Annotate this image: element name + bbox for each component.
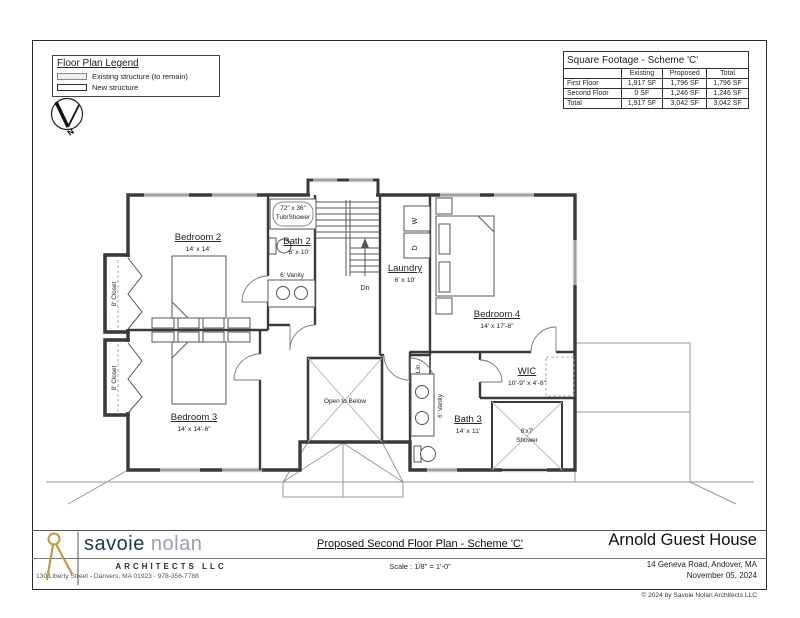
wic-label: WIC — [518, 366, 537, 377]
drawing-sheet: Floor Plan Legend Existing structure (to… — [0, 0, 800, 618]
bedroom4-label: Bedroom 4 — [474, 309, 520, 320]
project-name: Arnold Guest House — [580, 531, 757, 550]
col-proposed: Proposed — [663, 69, 707, 79]
svg-text:Shower: Shower — [516, 437, 539, 444]
shower-label: 6'x7' — [521, 428, 534, 435]
linen-label: Lin. — [415, 363, 422, 374]
table-row: Second Floor 0 SF 1,246 SF 1,246 SF — [564, 89, 749, 99]
washer-label: W — [412, 217, 419, 224]
col-existing: Existing — [621, 69, 663, 79]
firm-name: savoie nolan — [84, 533, 202, 556]
tub-size-label: 72" x 36" — [280, 205, 306, 212]
bedroom3-label: Bedroom 3 — [171, 412, 217, 423]
bed — [172, 256, 226, 318]
legend-item-new: New structure — [57, 83, 215, 92]
sheet-scale: Scale : 1/8" = 1'-0" — [280, 562, 560, 571]
project-date: November 05, 2024 — [580, 571, 757, 580]
copyright-note: © 2024 by Savoie Nolan Architects LLC — [580, 592, 757, 599]
legend-title: Floor Plan Legend — [57, 58, 215, 69]
project-address: 14 Geneva Road, Andover, MA — [580, 560, 757, 569]
toilet — [269, 238, 276, 254]
legend-new-label: New structure — [92, 83, 138, 92]
sheet-title: Proposed Second Floor Plan - Scheme 'C' — [280, 538, 560, 550]
bath3-label: Bath 3 — [454, 414, 481, 425]
svg-text:10'-9" x 4'-8": 10'-9" x 4'-8" — [508, 380, 547, 387]
laundry-label: Laundry — [388, 263, 423, 274]
bath3-vanity-label: 6' Vanity — [437, 393, 444, 418]
svg-text:14' x 14'-6": 14' x 14'-6" — [177, 426, 211, 433]
svg-text:6' x 10': 6' x 10' — [394, 277, 415, 284]
titleblock-mid-rule — [32, 558, 767, 559]
toilet — [414, 446, 421, 462]
dryer-label: D — [412, 245, 419, 250]
sqft-table-title: Square Footage - Scheme 'C' — [564, 52, 749, 69]
closet-lower-label: 8' Closet — [111, 365, 118, 390]
closet-upper-label: 8' Closet — [111, 281, 118, 306]
svg-text:14' x 17'-6": 14' x 17'-6" — [480, 323, 514, 330]
table-row: First Floor 1,917 SF 1,796 SF 1,796 SF — [564, 79, 749, 89]
floor-plan-legend: Floor Plan Legend Existing structure (to… — [52, 55, 220, 97]
svg-text:Tub/Shower: Tub/Shower — [276, 214, 311, 221]
existing-structure-swatch — [57, 73, 87, 80]
firm-address: 130 Liberty Street - Danvers, MA 01923 -… — [36, 573, 199, 580]
floor-plan: Dn — [32, 130, 768, 530]
bed — [172, 342, 226, 404]
vanity — [411, 374, 434, 436]
legend-existing-label: Existing structure (to remain) — [92, 72, 188, 81]
table-row: Total 1,917 SF 3,042 SF 3,042 SF — [564, 99, 749, 109]
svg-text:6' x 10': 6' x 10' — [288, 249, 309, 256]
bedroom2-label: Bedroom 2 — [175, 232, 221, 243]
svg-text:14' x 14': 14' x 14' — [186, 246, 211, 253]
bath2-vanity-label: 6' Vanity — [280, 272, 305, 279]
square-footage-table: Square Footage - Scheme 'C' Existing Pro… — [563, 51, 749, 109]
new-structure-swatch — [57, 84, 87, 91]
legend-item-existing: Existing structure (to remain) — [57, 72, 215, 81]
col-total: Total — [707, 69, 749, 79]
svg-text:14' x 11': 14' x 11' — [456, 428, 480, 435]
bath2-label: Bath 2 — [283, 236, 310, 247]
stairs-down-label: Dn — [361, 285, 370, 292]
open-to-below-label: Open to Below — [324, 398, 366, 405]
firm-subtitle: ARCHITECTS LLC — [96, 562, 246, 571]
